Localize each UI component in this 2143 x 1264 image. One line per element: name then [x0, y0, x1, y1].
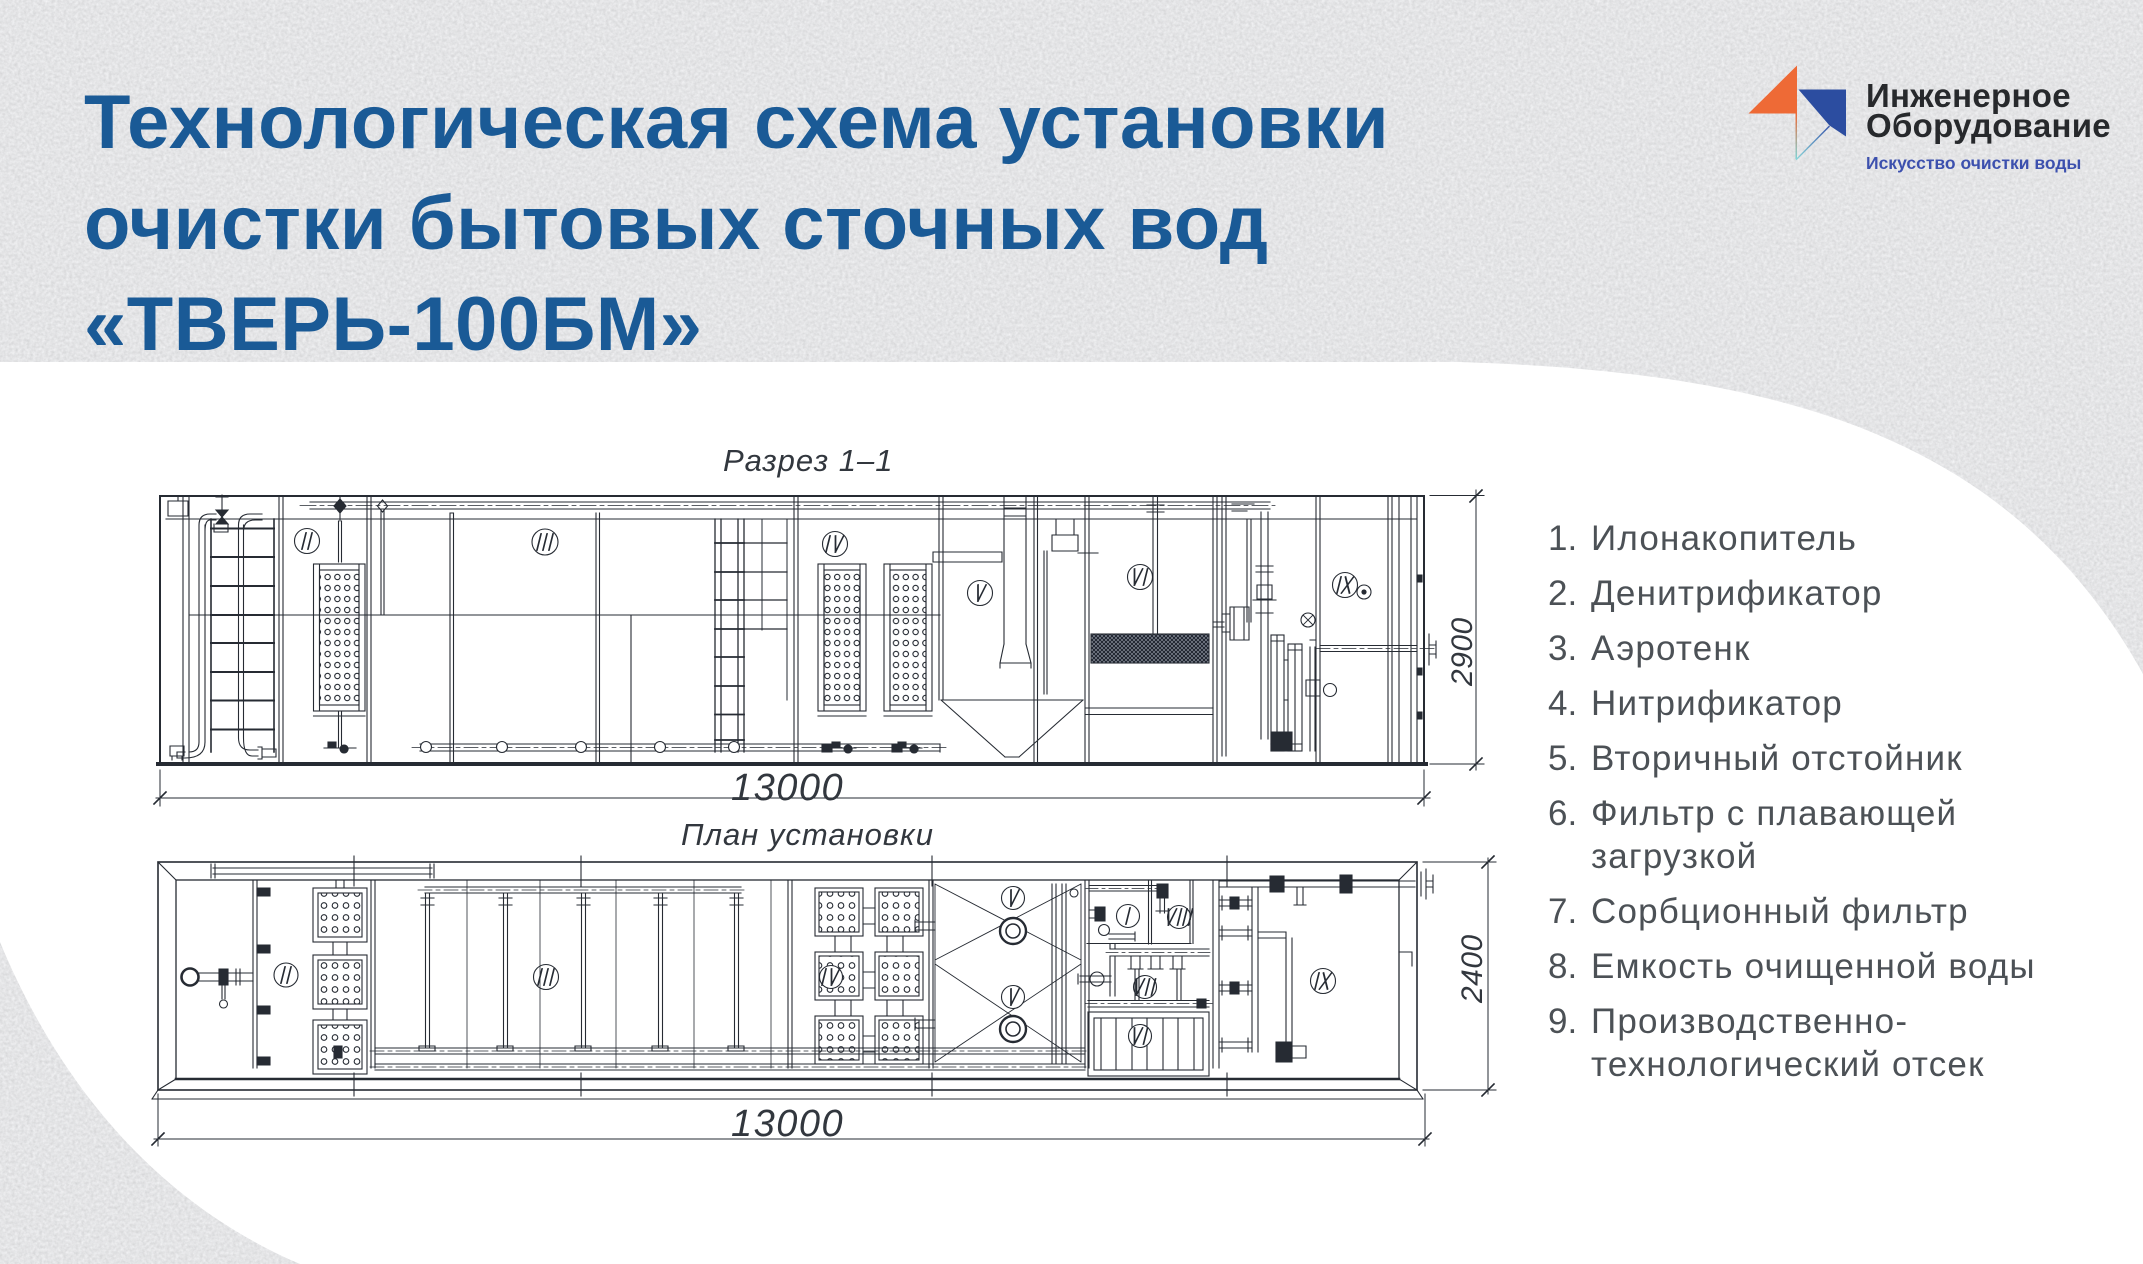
svg-text:13000: 13000: [731, 767, 844, 809]
svg-text:2400: 2400: [1456, 934, 1489, 1004]
svg-text:2900: 2900: [1446, 617, 1479, 687]
svg-text:Разрез 1–1: Разрез 1–1: [723, 443, 894, 478]
svg-text:План установки: План установки: [681, 817, 934, 852]
svg-text:13000: 13000: [731, 1103, 844, 1145]
